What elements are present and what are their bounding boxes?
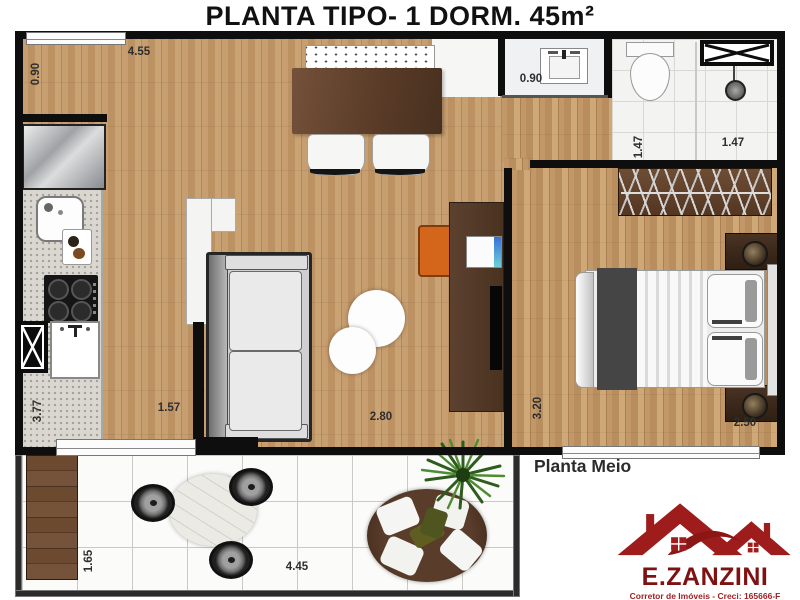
wall-top xyxy=(15,31,785,39)
tv xyxy=(490,286,502,370)
pillow-band xyxy=(712,320,742,324)
plan-caption: Planta Meio xyxy=(534,456,684,477)
shower-divider xyxy=(695,42,697,164)
dim-bedroom-width: 2.50 xyxy=(724,416,766,430)
blanket-roll xyxy=(575,272,594,388)
balcony-chair xyxy=(229,468,273,506)
toilet-bowl xyxy=(630,53,670,101)
lamp xyxy=(742,241,768,267)
tap-dash xyxy=(570,51,580,54)
food-item xyxy=(73,248,85,259)
dim-balcony-depth: 1.65 xyxy=(82,540,96,582)
page-title: PLANTA TIPO- 1 DORM. 45m² xyxy=(0,1,800,32)
faucet-icon xyxy=(44,203,53,212)
dim-balcony-width: 4.45 xyxy=(276,560,318,574)
wall-left xyxy=(15,31,23,455)
wall-niche-left xyxy=(498,38,505,96)
laptop-screen xyxy=(494,237,501,267)
dim-top-width: 4.55 xyxy=(118,45,160,59)
tap-dot xyxy=(86,327,90,331)
brand-tagline: Corretor de Imóveis - Creci: 165666-F xyxy=(610,591,800,600)
niche-sill xyxy=(502,95,608,98)
logo-roofs-icon xyxy=(615,498,795,564)
dim-bath-width: 1.47 xyxy=(712,136,754,150)
sofa-arm xyxy=(225,255,308,270)
dining-chair xyxy=(307,134,365,176)
dim-bedroom-length: 3.20 xyxy=(531,387,545,429)
tap-dot xyxy=(60,327,64,331)
dim-bath-niche: 0.90 xyxy=(510,72,552,86)
tap-dash xyxy=(548,51,558,54)
hall-floor xyxy=(502,96,612,162)
chair-back xyxy=(310,169,360,175)
dim-bath-depth: 1.47 xyxy=(632,126,646,168)
dining-table xyxy=(292,68,442,134)
balcony-sliding-door xyxy=(56,439,196,456)
round-rug xyxy=(329,327,376,374)
lamp xyxy=(742,393,768,419)
burner xyxy=(71,301,92,322)
duct-shaft-icon xyxy=(17,321,48,373)
chair-dot xyxy=(150,500,157,506)
shower-head xyxy=(725,80,746,101)
drain-icon xyxy=(58,210,63,215)
brand-name: E.ZANZINI xyxy=(610,565,800,590)
chair-back xyxy=(375,169,425,175)
burner xyxy=(71,279,92,300)
wall-bath-bedroom xyxy=(530,160,785,168)
cutting-board xyxy=(62,229,92,265)
sofa xyxy=(206,252,312,442)
toilet xyxy=(624,42,676,100)
balcony-wall-bottom xyxy=(15,590,520,597)
brand-logo: E.ZANZINI Corretor de Imóveis - Creci: 1… xyxy=(610,498,800,600)
dim-living-width: 2.80 xyxy=(360,410,402,424)
sofa-cushion xyxy=(229,271,302,351)
chair-dot xyxy=(228,557,235,563)
floor-plan-page: PLANTA TIPO- 1 DORM. 45m² xyxy=(0,0,800,600)
kitchen-counter-mirror xyxy=(22,124,106,190)
pillow xyxy=(707,332,763,386)
wardrobe-rail xyxy=(621,192,769,194)
entry-counter-area xyxy=(432,39,500,97)
chair-dot xyxy=(248,484,255,490)
burner xyxy=(48,279,69,300)
balcony-chair xyxy=(209,541,253,579)
food-item xyxy=(68,236,79,247)
cooktop xyxy=(44,275,98,323)
wall-entry-niche xyxy=(22,114,107,122)
duct-shaft-icon xyxy=(700,40,774,66)
wall-right xyxy=(777,31,785,455)
wardrobe xyxy=(618,168,772,216)
cooktop-knobs xyxy=(93,283,96,315)
window-entry xyxy=(26,32,126,45)
wall-stub-balcony xyxy=(193,437,258,449)
wall-living-bedroom xyxy=(504,168,512,448)
double-bed xyxy=(575,268,769,390)
balcony-cabinet xyxy=(26,455,78,580)
pillow-band xyxy=(712,336,742,340)
sofa-cushion xyxy=(229,351,302,431)
faucet-stem xyxy=(74,328,77,337)
dim-entry-niche: 0.90 xyxy=(29,53,43,95)
pillow xyxy=(707,274,763,328)
dim-living-left: 1.57 xyxy=(148,401,190,415)
pillow-accent xyxy=(745,338,757,380)
pillow-accent xyxy=(745,280,757,322)
balcony-wall-left xyxy=(15,455,22,597)
wall-stub-sofa xyxy=(193,322,204,448)
balcony-wall-right xyxy=(513,455,520,597)
dining-chair xyxy=(372,134,430,176)
dim-kitchen-length: 3.77 xyxy=(31,390,45,432)
wall-bath-door-jamb xyxy=(604,38,612,98)
burner xyxy=(48,301,69,322)
kitchen-sink-bottom xyxy=(50,321,100,379)
sofa-back xyxy=(209,255,228,439)
quilt xyxy=(637,271,707,387)
bed-runner xyxy=(597,268,637,390)
laptop xyxy=(466,236,502,268)
balcony-chair xyxy=(131,484,175,522)
basin xyxy=(549,56,580,79)
faucet-icon xyxy=(562,50,566,59)
